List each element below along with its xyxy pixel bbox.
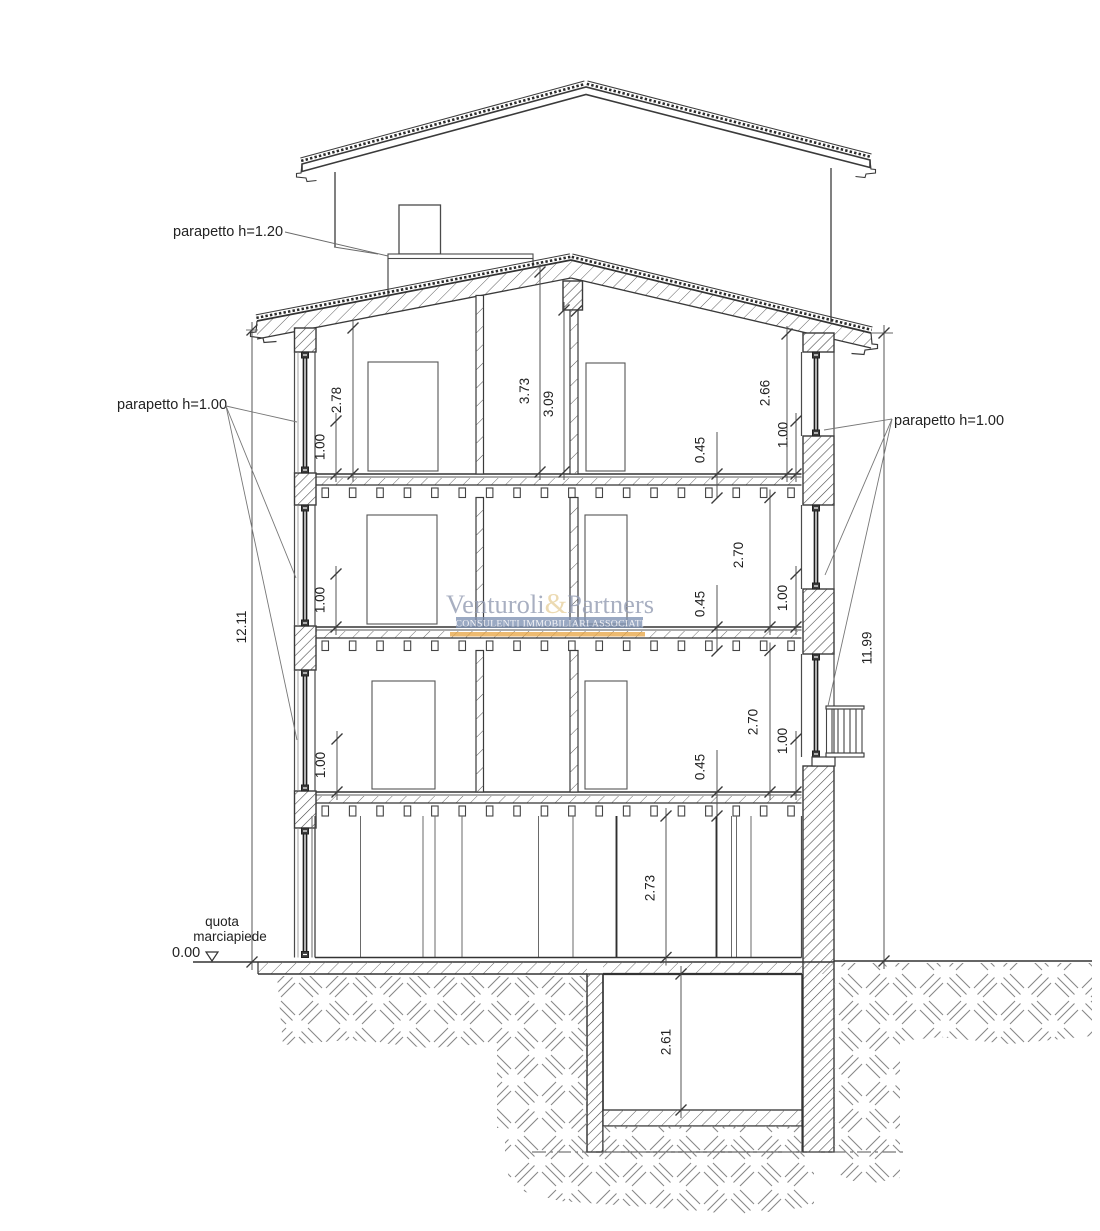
svg-text:0.45: 0.45 — [693, 591, 708, 617]
svg-text:2.73: 2.73 — [643, 875, 658, 901]
svg-text:3.73: 3.73 — [517, 378, 532, 404]
svg-text:1.00: 1.00 — [313, 434, 328, 460]
svg-text:0.45: 0.45 — [693, 437, 708, 463]
svg-text:2.66: 2.66 — [758, 380, 773, 406]
svg-text:parapetto h=1.00: parapetto h=1.00 — [117, 397, 227, 413]
svg-text:2.61: 2.61 — [659, 1029, 674, 1055]
svg-text:quota: quota — [205, 914, 239, 929]
svg-text:0.00: 0.00 — [172, 945, 200, 961]
svg-text:1.00: 1.00 — [776, 422, 791, 448]
svg-text:1.00: 1.00 — [313, 587, 328, 613]
svg-text:1.00: 1.00 — [775, 728, 790, 754]
svg-text:marciapiede: marciapiede — [193, 929, 267, 944]
svg-text:Venturoli&Partners: Venturoli&Partners — [446, 588, 654, 620]
svg-text:2.70: 2.70 — [746, 709, 761, 735]
svg-text:2.70: 2.70 — [731, 542, 746, 568]
svg-text:1.00: 1.00 — [313, 752, 328, 778]
svg-text:0.45: 0.45 — [693, 754, 708, 780]
svg-text:3.09: 3.09 — [541, 391, 556, 417]
svg-text:2.78: 2.78 — [329, 387, 344, 413]
svg-text:CONSULENTI IMMOBILIARI ASSOCIA: CONSULENTI IMMOBILIARI ASSOCIATI — [455, 619, 644, 630]
svg-text:1.00: 1.00 — [775, 585, 790, 611]
svg-text:parapetto h=1.20: parapetto h=1.20 — [173, 224, 283, 240]
svg-text:12.11: 12.11 — [234, 611, 249, 644]
svg-text:11.99: 11.99 — [860, 632, 875, 665]
svg-text:parapetto h=1.00: parapetto h=1.00 — [894, 413, 1004, 429]
